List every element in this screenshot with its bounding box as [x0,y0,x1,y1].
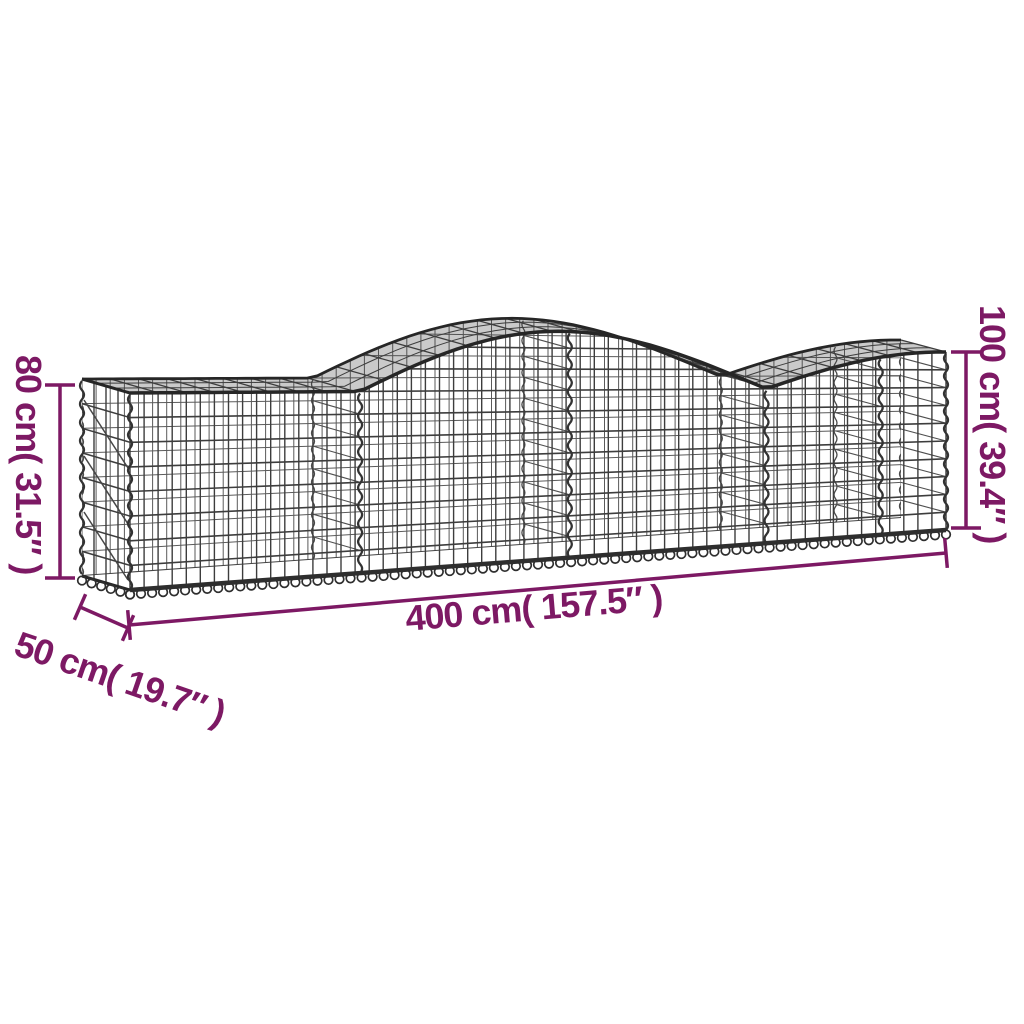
height-left-dimension-line [45,385,75,578]
depth-dimension-line [74,594,133,641]
gabion-basket-illustration [0,0,1024,1024]
height-right-label: 100 cm( 39.4″ ) [974,305,1010,543]
height-left-label: 80 cm( 31.5″ ) [10,355,46,574]
product-dimension-figure: 80 cm( 31.5″ ) 100 cm( 39.4″ ) 400 cm( 1… [0,0,1024,1024]
left-end-face-mesh [80,381,130,587]
